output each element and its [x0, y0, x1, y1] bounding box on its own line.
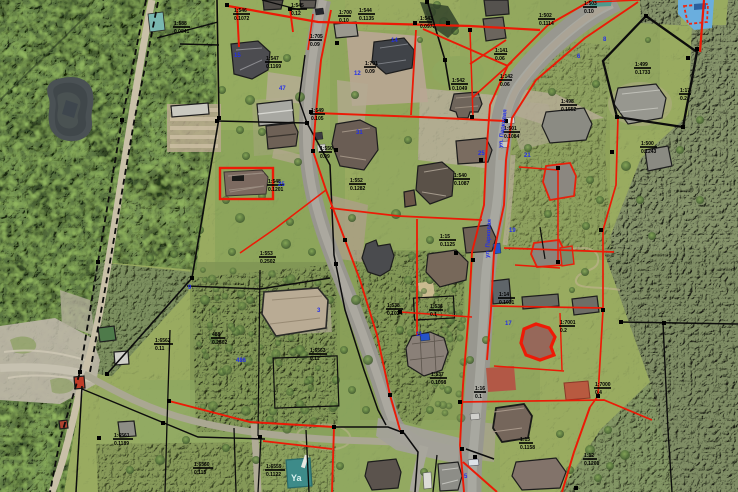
svg-text:0.1552: 0.1552	[561, 107, 577, 113]
svg-text:0.10: 0.10	[584, 9, 594, 15]
svg-text:1:498: 1:498	[561, 99, 574, 105]
svg-text:486: 486	[236, 358, 247, 364]
svg-text:0.1243: 0.1243	[641, 149, 657, 155]
svg-text:15: 15	[234, 53, 241, 59]
svg-text:0.1733: 0.1733	[635, 70, 651, 76]
svg-text:1:700: 1:700	[339, 10, 352, 16]
svg-text:31: 31	[356, 130, 363, 136]
svg-text:1:543: 1:543	[420, 16, 433, 22]
svg-text:1:545: 1:545	[291, 3, 304, 9]
svg-text:1:6559: 1:6559	[266, 464, 282, 470]
svg-text:0.09: 0.09	[310, 42, 320, 48]
svg-text:0.0977: 0.0977	[420, 24, 436, 30]
svg-text:0.2: 0.2	[680, 96, 687, 102]
svg-text:0.1135: 0.1135	[359, 16, 374, 22]
svg-text:1:547: 1:547	[266, 56, 279, 62]
svg-text:0.1049: 0.1049	[452, 86, 468, 92]
svg-text:1:550: 1:550	[320, 146, 333, 152]
svg-text:0.1072: 0.1072	[234, 16, 250, 22]
svg-text:0.1098: 0.1098	[431, 380, 447, 386]
svg-text:1:705: 1:705	[310, 34, 323, 40]
svg-text:1:503: 1:503	[584, 1, 597, 7]
svg-text:1:499: 1:499	[635, 62, 648, 68]
svg-text:1:141: 1:141	[495, 48, 508, 54]
svg-text:1:15: 1:15	[440, 234, 450, 240]
svg-text:0.1: 0.1	[430, 312, 437, 318]
svg-text:0.1031: 0.1031	[499, 300, 515, 306]
svg-text:1:701: 1:701	[365, 61, 378, 67]
svg-text:12: 12	[354, 71, 361, 77]
svg-text:19: 19	[509, 228, 516, 234]
svg-text:Ya: Ya	[291, 473, 303, 483]
svg-text:1:142: 1:142	[500, 74, 513, 80]
svg-text:0.115: 0.115	[194, 470, 206, 476]
svg-text:1:537: 1:537	[431, 372, 444, 378]
svg-text:25: 25	[478, 151, 485, 157]
svg-text:0.2502: 0.2502	[260, 259, 276, 265]
svg-text:0.1282: 0.1282	[350, 186, 366, 192]
svg-text:0.1189: 0.1189	[114, 441, 129, 447]
svg-text:0.1169: 0.1169	[266, 64, 281, 70]
svg-text:0.2: 0.2	[560, 328, 567, 334]
svg-text:1:7000: 1:7000	[595, 382, 611, 388]
svg-text:1:14: 1:14	[499, 292, 509, 298]
svg-text:1:6561: 1:6561	[114, 433, 130, 439]
svg-text:47: 47	[279, 86, 286, 92]
svg-text:0.1201: 0.1201	[584, 461, 600, 467]
svg-text:1:546: 1:546	[234, 8, 247, 14]
svg-text:1:588: 1:588	[174, 21, 187, 27]
svg-text:14: 14	[391, 38, 398, 44]
svg-text:0.1158: 0.1158	[520, 445, 535, 451]
svg-text:0.10: 0.10	[339, 18, 349, 24]
svg-text:1:6563: 1:6563	[310, 348, 326, 354]
svg-text:488: 488	[212, 332, 221, 338]
svg-text:0.06: 0.06	[495, 56, 505, 62]
svg-text:1:6560: 1:6560	[194, 462, 210, 468]
svg-text:0.09: 0.09	[365, 69, 375, 75]
svg-text:1:502: 1:502	[539, 13, 552, 19]
svg-text:1:540: 1:540	[454, 173, 467, 179]
svg-text:1:542: 1:542	[452, 78, 465, 84]
svg-text:1:16: 1:16	[475, 386, 485, 392]
svg-text:21: 21	[524, 153, 531, 159]
svg-text:0.1125: 0.1125	[440, 242, 455, 248]
svg-text:1:536: 1:536	[430, 304, 443, 310]
svg-text:17: 17	[505, 321, 512, 327]
svg-text:0.09: 0.09	[320, 154, 330, 160]
svg-text:1:17: 1:17	[680, 88, 690, 94]
svg-text:0.1114: 0.1114	[539, 21, 554, 27]
svg-text:0.06: 0.06	[500, 82, 510, 88]
svg-text:0.11: 0.11	[310, 356, 320, 362]
svg-text:0.1: 0.1	[475, 394, 482, 400]
svg-text:1:12: 1:12	[584, 453, 594, 459]
svg-text:1:549: 1:549	[311, 108, 324, 114]
svg-text:0.1122: 0.1122	[266, 472, 281, 478]
svg-text:1:553: 1:553	[260, 251, 273, 257]
svg-text:1:552: 1:552	[350, 178, 363, 184]
svg-text:25: 25	[278, 182, 285, 188]
svg-text:0.1087: 0.1087	[454, 181, 470, 187]
svg-text:1:500: 1:500	[641, 141, 654, 147]
svg-text:0.2502: 0.2502	[212, 340, 228, 346]
svg-text:0.1024: 0.1024	[387, 311, 403, 317]
svg-text:0.12: 0.12	[291, 11, 301, 17]
svg-text:0.105: 0.105	[311, 116, 324, 122]
svg-text:1:6562: 1:6562	[155, 338, 171, 344]
svg-text:11: 11	[416, 332, 423, 338]
svg-text:1:538: 1:538	[387, 303, 400, 309]
svg-text:1:7001: 1:7001	[560, 320, 576, 326]
svg-text:0.0841: 0.0841	[174, 29, 190, 35]
svg-text:0.4: 0.4	[595, 390, 602, 396]
svg-text:1:13: 1:13	[520, 437, 530, 443]
svg-text:1:544: 1:544	[359, 8, 372, 14]
svg-text:0.1084: 0.1084	[504, 134, 520, 140]
svg-text:0.11: 0.11	[155, 346, 165, 352]
